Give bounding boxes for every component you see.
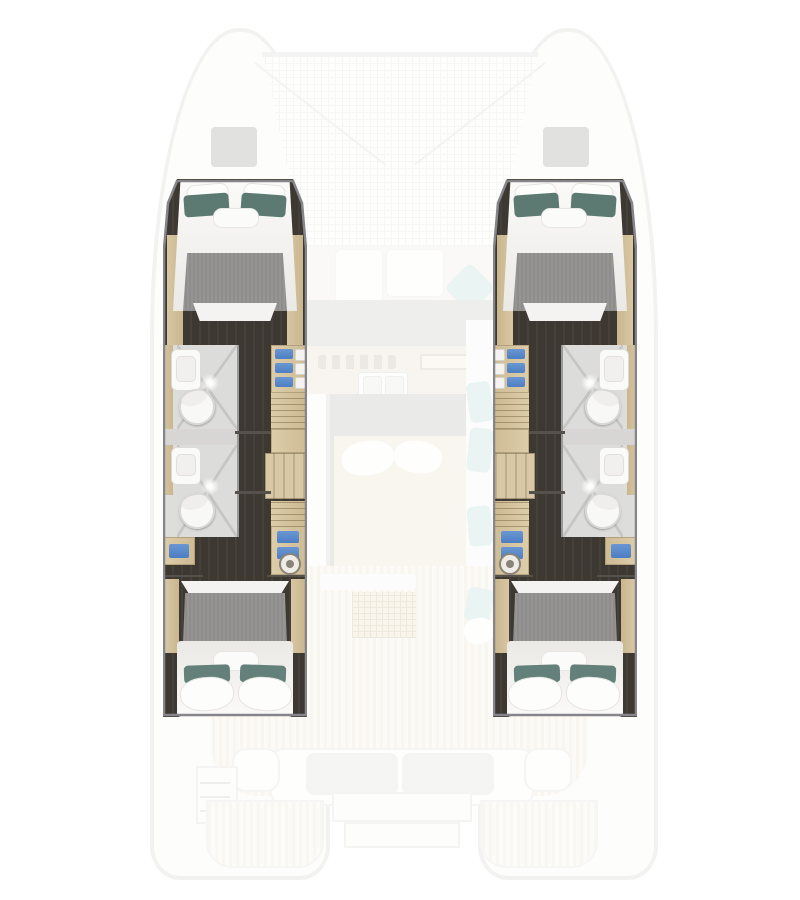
bathroom-forward	[561, 345, 637, 429]
stove-icon	[318, 355, 396, 369]
stored-item-blue	[169, 544, 189, 558]
cabinet	[163, 537, 195, 565]
sink	[171, 349, 201, 391]
stored-item	[494, 363, 505, 375]
mid-section	[493, 345, 637, 575]
companionway-stairs	[265, 453, 307, 499]
sofa-pillow-teal	[466, 505, 493, 547]
cabin-door	[235, 431, 271, 434]
bench-cushion	[306, 753, 398, 795]
forward-crossbeam	[262, 52, 538, 57]
bed-runner	[183, 593, 287, 643]
catamaran-floorplan	[0, 0, 800, 900]
swim-platform-starboard	[480, 800, 598, 868]
floor-mat	[352, 592, 416, 638]
hanger-icon	[271, 393, 307, 429]
stored-item	[295, 377, 306, 389]
cabin-wall	[597, 575, 637, 577]
bed-foot-sheet	[193, 303, 277, 321]
cockpit-side-seat-port	[232, 748, 280, 792]
bow-hatch-icon-starboard	[543, 127, 589, 167]
bed-foot-sheet	[181, 581, 289, 595]
bathroom-divider	[163, 429, 239, 445]
stored-item	[295, 363, 306, 375]
bathroom-aft	[561, 445, 637, 537]
cabin-wall	[163, 575, 203, 577]
bathroom-aft	[163, 445, 239, 537]
bathroom-forward	[163, 345, 239, 429]
lumbar-pillow	[541, 208, 587, 228]
hanger-icon	[493, 393, 529, 429]
wardrobe	[271, 501, 307, 575]
stored-item	[295, 349, 306, 361]
lumbar-pillow	[213, 208, 259, 228]
transom-step	[344, 822, 460, 848]
port-hull-suites	[163, 179, 307, 717]
folded-clothes-blue	[501, 531, 523, 543]
hanger-icon	[493, 501, 529, 527]
stored-item-blue	[275, 349, 293, 359]
aft-sofa-back	[320, 574, 416, 590]
mid-section	[163, 345, 307, 575]
washer-icon	[499, 553, 521, 575]
stored-item-blue	[611, 544, 631, 558]
sink	[171, 447, 201, 485]
bed-foot-sheet	[523, 303, 607, 321]
starboard-hull-suites	[493, 179, 637, 717]
cabin-door	[529, 431, 565, 434]
stored-item-blue	[507, 377, 525, 387]
sink	[599, 447, 629, 485]
open-shelves	[271, 345, 307, 393]
stored-item-blue	[507, 363, 525, 373]
aft-cabin	[163, 575, 307, 717]
bench-cushion	[402, 753, 494, 795]
stored-item-blue	[507, 349, 525, 359]
cabin-door	[529, 491, 565, 494]
bow-hatch-icon-port	[211, 127, 257, 167]
bedside-trim	[291, 579, 305, 653]
forward-cabin	[163, 179, 307, 345]
bed-runner	[183, 253, 287, 311]
cabinet	[605, 537, 637, 565]
shelf	[271, 429, 307, 453]
swim-platform-port	[206, 800, 324, 868]
cabin-wall	[267, 575, 307, 577]
washer-icon	[279, 553, 301, 575]
shelf	[493, 429, 529, 453]
sink	[599, 349, 629, 391]
cockpit-side-seat-starboard	[524, 748, 572, 792]
cabin-door	[235, 491, 271, 494]
hanger-icon	[271, 501, 307, 527]
forward-cabin	[493, 179, 637, 345]
bed-foot-sheet	[511, 581, 619, 595]
lounge-cushion	[335, 249, 383, 303]
stored-item-blue	[275, 377, 293, 387]
folded-clothes-blue	[277, 531, 299, 543]
boat-shell-ghosted	[0, 0, 800, 900]
bedside-trim	[621, 579, 635, 653]
open-shelves	[493, 345, 529, 393]
bed-runner	[513, 593, 617, 643]
stored-item-blue	[275, 363, 293, 373]
lounge-cushion	[386, 249, 444, 297]
stored-item	[494, 349, 505, 361]
cabin-wall	[493, 575, 533, 577]
sofa-pillow-teal	[466, 427, 494, 473]
aft-cabin	[493, 575, 637, 717]
stored-item	[494, 377, 505, 389]
bathroom-divider	[561, 429, 637, 445]
bed-runner	[513, 253, 617, 311]
wardrobe	[493, 501, 529, 575]
transom-locker	[332, 792, 472, 822]
